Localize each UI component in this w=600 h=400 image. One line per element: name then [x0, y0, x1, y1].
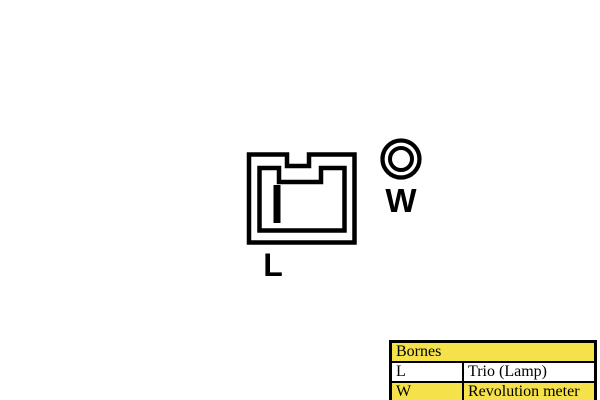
legend-description-l-cell: Trio (Lamp) [463, 362, 596, 382]
legend-row-l: L Trio (Lamp) [391, 362, 596, 382]
terminal-w-inner-ring [390, 148, 412, 170]
legend-terminal-l-cell: L [391, 362, 464, 382]
terminal-l-label: L [257, 249, 289, 281]
legend-description-w-cell: Revolution meter [463, 382, 596, 400]
legend-terminal-w-cell: W [391, 382, 464, 400]
diagram-canvas: L W Bornes L Trio (Lamp) W Revolution me… [0, 0, 600, 400]
terminal-w-label: W [383, 184, 419, 217]
legend-header-row: Bornes [391, 342, 596, 363]
terminal-l-blade [274, 185, 281, 223]
legend-table: Bornes L Trio (Lamp) W Revolution meter [389, 340, 597, 400]
legend-row-w: W Revolution meter [391, 382, 596, 400]
legend-header-cell: Bornes [391, 342, 596, 363]
